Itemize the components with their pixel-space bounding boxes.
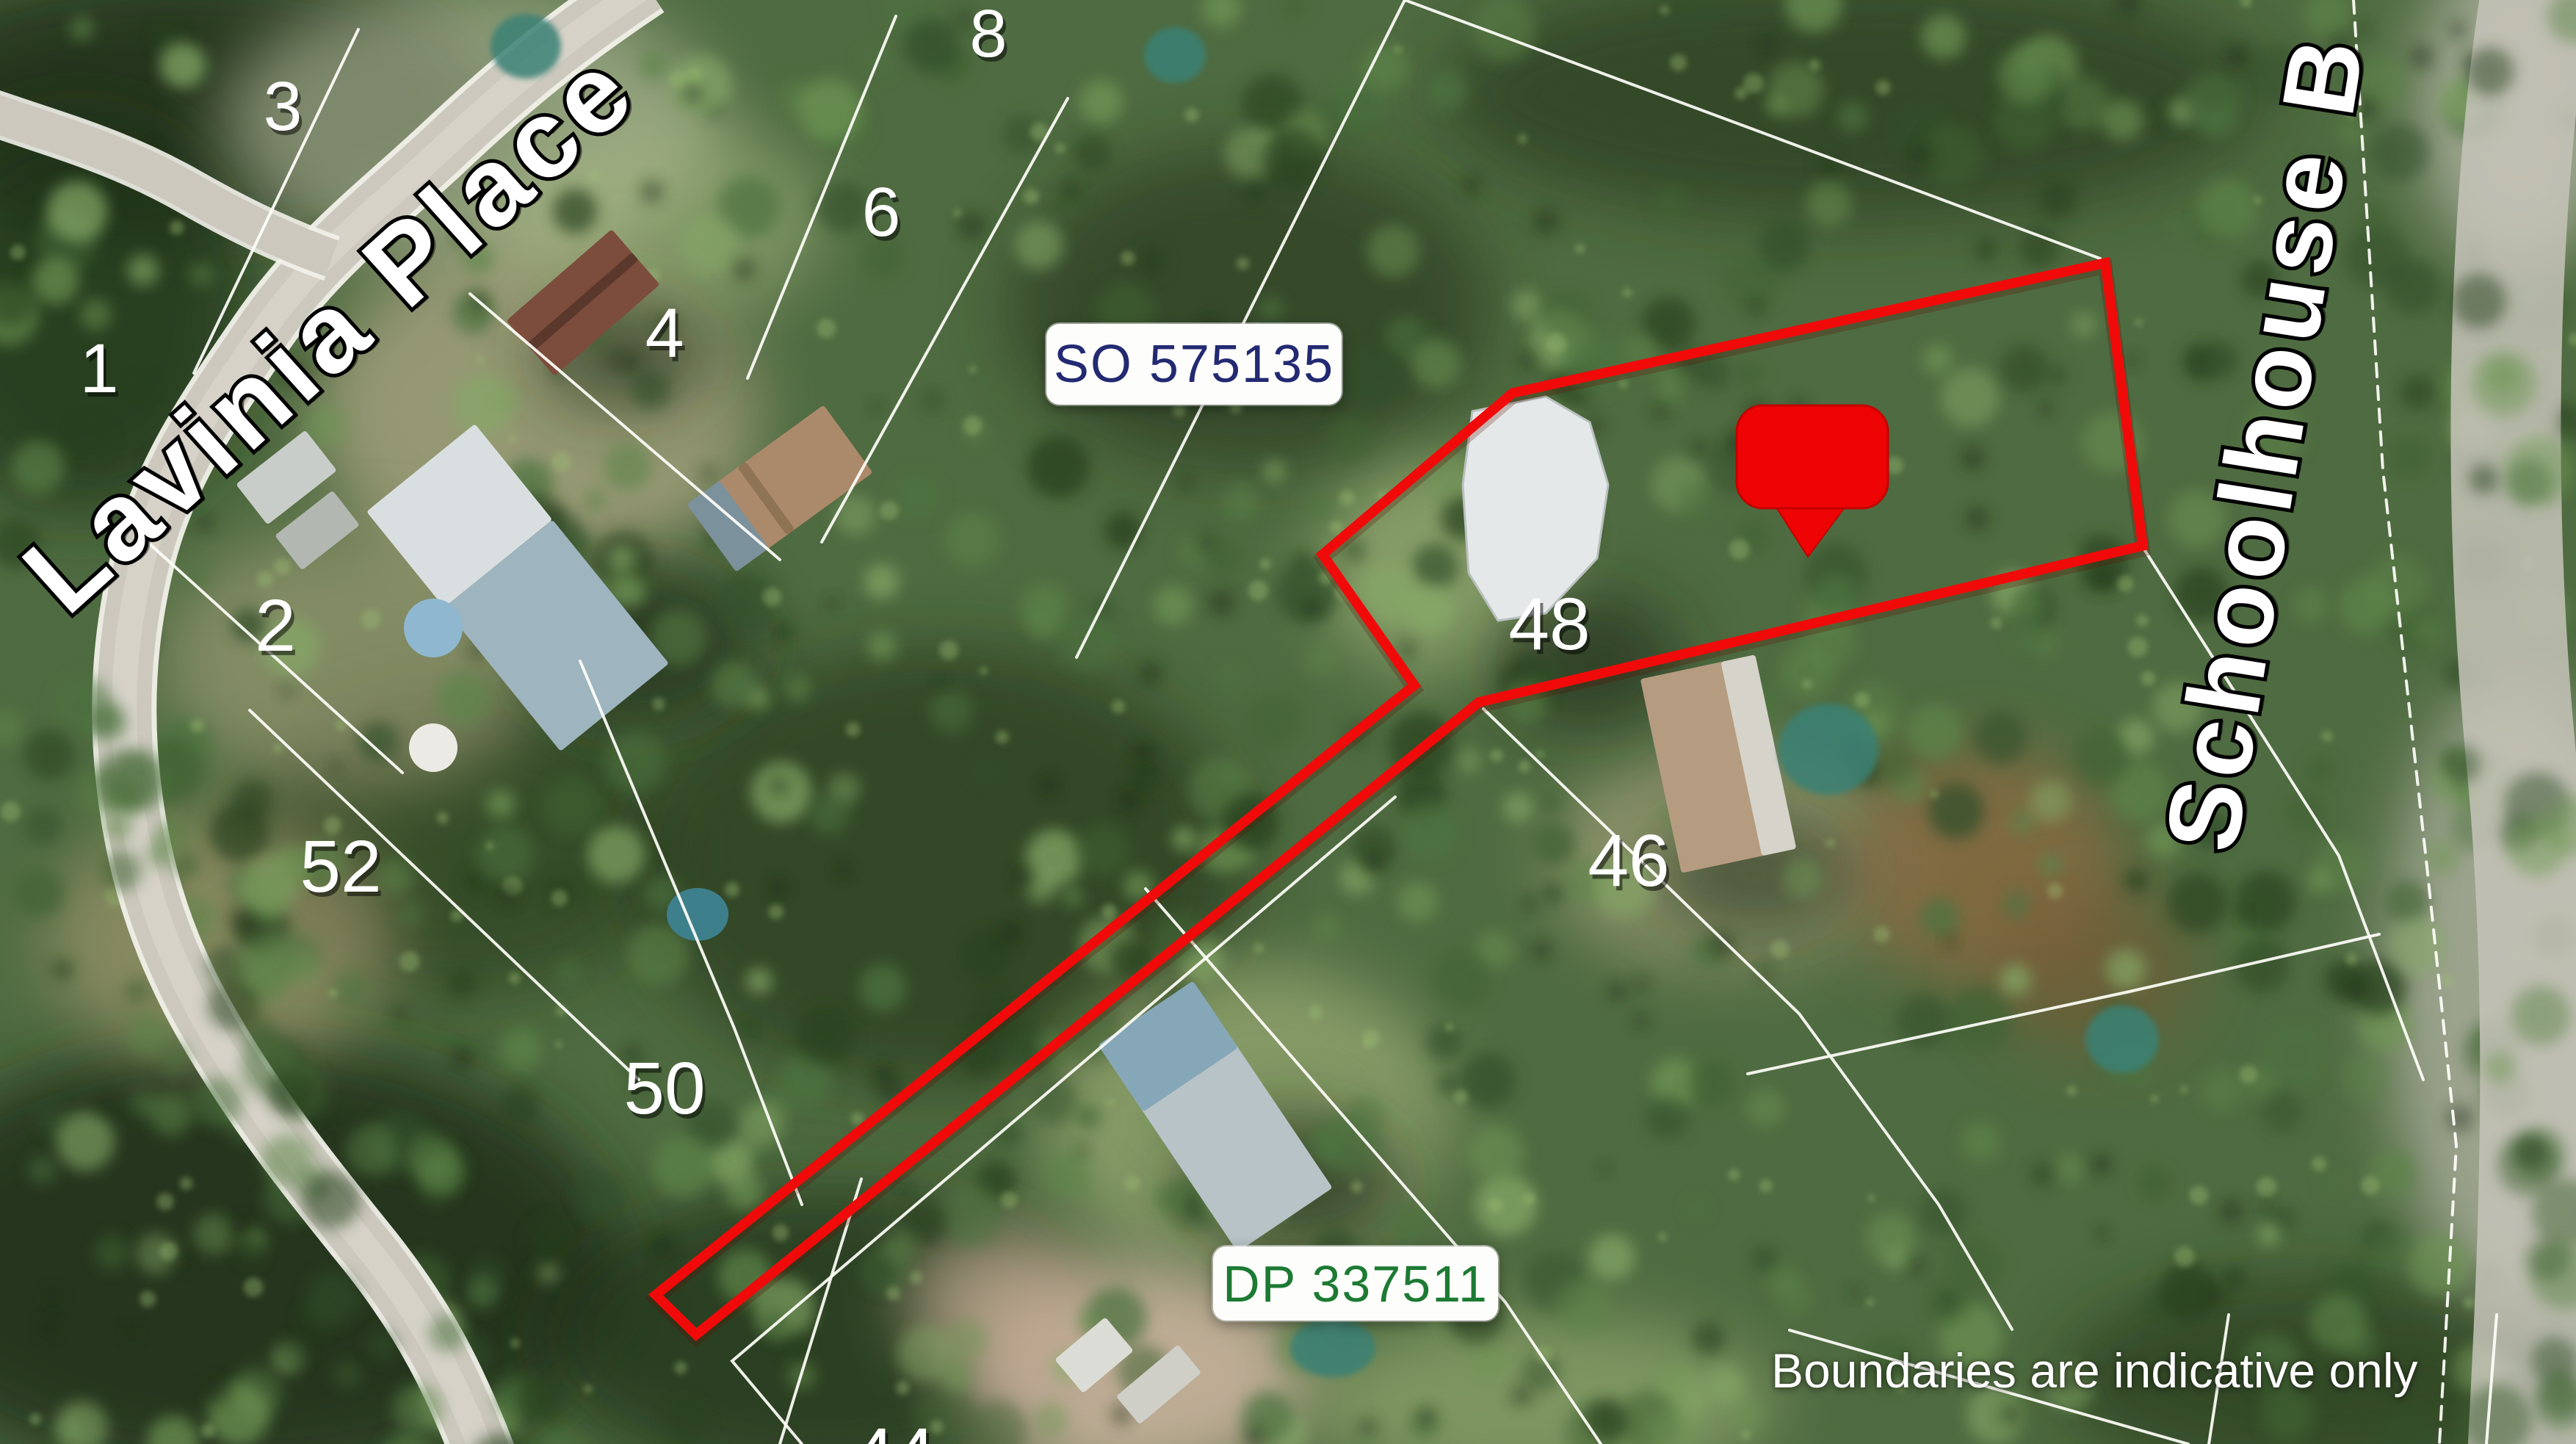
lot-number-1: 1: [80, 330, 119, 408]
teal-tree: [2085, 1006, 2159, 1073]
lot-number-46: 46: [1588, 820, 1669, 902]
teal-tree: [1779, 704, 1878, 795]
lot-number-6: 6: [862, 173, 901, 251]
survey-plan-label-dp-text: DP 337511: [1223, 1255, 1488, 1313]
teal-tree: [1290, 1318, 1375, 1377]
lot-number-48: 48: [1508, 583, 1590, 665]
disclaimer-text: Boundaries are indicative only: [1771, 1343, 2418, 1398]
lot-number-3: 3: [264, 68, 303, 145]
aerial-map: 33118866442252525050484846464444Lavinia …: [0, 0, 2576, 1444]
white-dome-tank: [409, 723, 457, 772]
survey-plan-label-so-text: SO 575135: [1054, 334, 1334, 394]
teal-tree: [1144, 27, 1206, 83]
spa-pool: [404, 599, 463, 657]
survey-plan-label-so: SO 575135: [1046, 324, 1342, 405]
lot-number-50: 50: [623, 1047, 705, 1130]
lot-number-4: 4: [645, 295, 684, 372]
lot-number-8: 8: [969, 0, 1007, 71]
aerial-map-canvas[interactable]: 33118866442252525050484846464444Lavinia …: [0, 0, 2576, 1444]
lot-number-2: 2: [255, 585, 296, 667]
survey-plan-label-dp: DP 337511: [1213, 1246, 1498, 1321]
lot-number-44: 44: [853, 1413, 935, 1444]
pool-lot-50: [667, 888, 728, 941]
lot-number-52: 52: [300, 826, 381, 908]
